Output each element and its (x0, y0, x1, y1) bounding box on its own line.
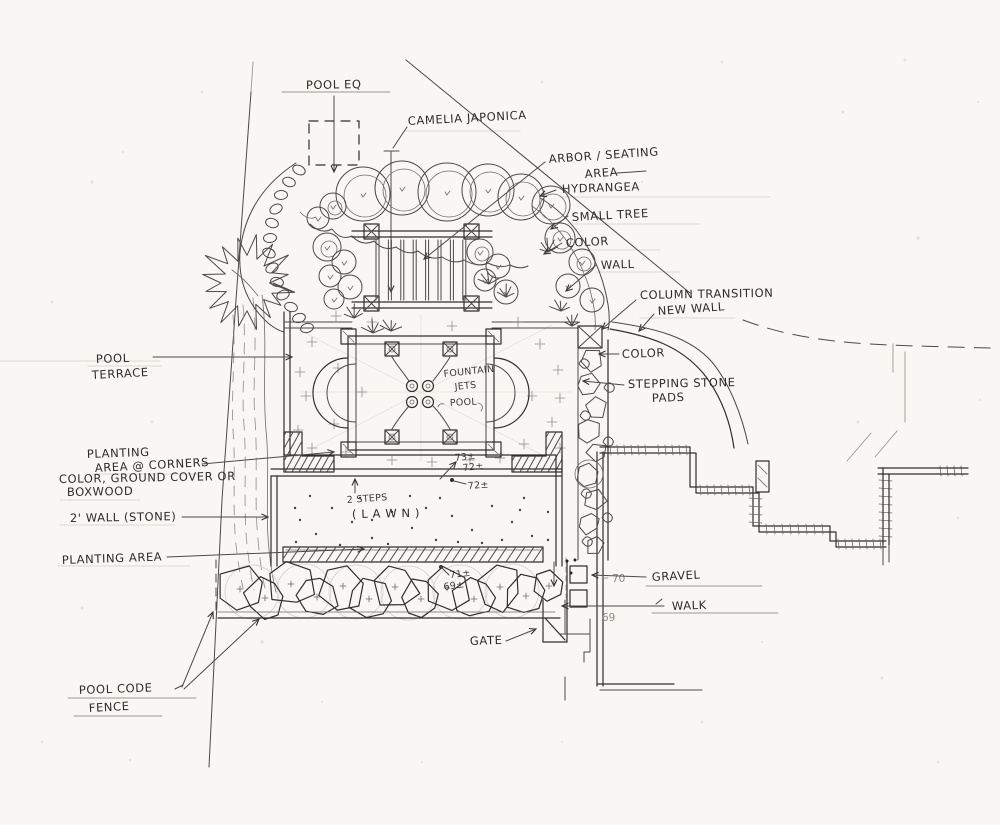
elev-72b: 72± (467, 480, 489, 492)
shrub-cluster-right (467, 239, 518, 304)
label-ground-cover-2: BOXWOOD (67, 484, 134, 499)
label-color-upper: COLOR (565, 234, 609, 250)
callout-planting-area: PLANTING AREA (62, 549, 364, 567)
label-two-steps: 2 STEPS (346, 492, 387, 506)
label-gate: GATE (470, 633, 503, 648)
elevation-notes-steps: 73± 72± 72± (440, 451, 489, 492)
label-pool-terrace-2: TERRACE (90, 365, 149, 382)
stepping-stone-strip (575, 326, 614, 560)
pool-equipment-callout: POOL EQ (306, 77, 362, 172)
paper-speckles (41, 59, 981, 764)
label-arbor-1: ARBOR / SEATING (548, 144, 659, 166)
corner-bed-sw (264, 432, 370, 472)
callout-walk: WALK 69 (562, 598, 707, 624)
steps: 2 STEPS 73± 72± 72± (271, 451, 562, 506)
elev-72a: 72± (462, 461, 484, 474)
label-column-transition: COLUMN TRANSITION (640, 286, 774, 302)
label-fountain-1: FOUNTAIN (443, 364, 495, 380)
label-planting-area: PLANTING AREA (62, 550, 163, 567)
label-small-tree: SMALL TREE (571, 206, 649, 224)
gate-swing (545, 618, 565, 640)
label-hydrangea: HYDRANGEA (562, 179, 640, 196)
property-line (209, 62, 253, 767)
gravel-area (554, 558, 587, 607)
label-stepping-2: PADS (652, 390, 685, 405)
wall-masonry-ticks (610, 445, 962, 549)
shrub-row (307, 161, 570, 229)
camelia-callout: CAMELIA JAPONICA (384, 108, 527, 292)
label-pool-code-2: FENCE (88, 699, 129, 715)
arbor (352, 224, 492, 311)
callout-gate: GATE (470, 629, 536, 648)
terrace (264, 311, 598, 472)
elev-69-pencil: 69 (602, 612, 615, 624)
callout-new-wall: NEW WALL (639, 299, 725, 331)
label-color-right: COLOR (622, 346, 666, 361)
label-camelia: CAMELIA JAPONICA (407, 108, 527, 128)
elev-70-pencil: 70 (612, 573, 625, 585)
label-walk: WALK (672, 598, 707, 613)
fountain-jets (407, 381, 434, 408)
fern-plants (344, 238, 579, 333)
spiky-plant (203, 235, 295, 330)
label-wall: WALL (601, 257, 635, 272)
shrub-cluster-left (313, 233, 362, 309)
paving-joint-marks (293, 311, 565, 467)
label-gravel: GRAVEL (651, 567, 700, 584)
callout-color-right: COLOR (599, 346, 665, 361)
swale-path (233, 295, 276, 592)
lawn-dots (294, 495, 549, 546)
plan-drawing: POOL EQ CAMELIA JAPONICA (0, 0, 1000, 825)
callout-pool-code-fence: POOL CODE FENCE (79, 612, 259, 715)
callout-arbor: ARBOR / SEATING AREA (424, 144, 659, 259)
garden-wall-right (878, 468, 968, 565)
garden-wall-stepped (600, 445, 962, 549)
label-pool: POOL (450, 397, 478, 409)
elev-69: 69± (443, 579, 465, 593)
label-stepping-1: STEPPING STONE (628, 375, 736, 391)
label-pool-eq: POOL EQ (306, 77, 362, 92)
callout-stone-wall: 2' WALL (STONE) (70, 509, 268, 525)
survey-marks (847, 352, 905, 461)
callout-pool-terrace: POOL TERRACE (90, 351, 292, 382)
south-planting-strip (263, 547, 570, 562)
label-new-wall: NEW WALL (657, 299, 725, 318)
label-arbor-2: AREA (584, 165, 618, 181)
label-ground-cover-1: COLOR, GROUND COVER OR (59, 469, 236, 486)
callouts: ARBOR / SEATING AREA HYDRANGEA SMALL TRE… (59, 144, 774, 715)
callout-gravel: GRAVEL 70 (592, 567, 701, 585)
label-fountain-2: JETS (453, 380, 477, 393)
label-pool-code-1: POOL CODE (79, 680, 153, 697)
boulder-edging (261, 163, 314, 334)
label-lawn: ( L A W N ) (352, 506, 420, 521)
label-pool-terrace-1: POOL (96, 351, 130, 366)
wall-alignment-line (406, 60, 992, 372)
northwest-bed (203, 163, 362, 334)
label-stone-wall: 2' WALL (STONE) (70, 509, 177, 525)
landscape-plan-sheet: POOL EQ CAMELIA JAPONICA (0, 0, 1000, 825)
note-ground-cover: COLOR, GROUND COVER OR BOXWOOD (59, 469, 236, 499)
